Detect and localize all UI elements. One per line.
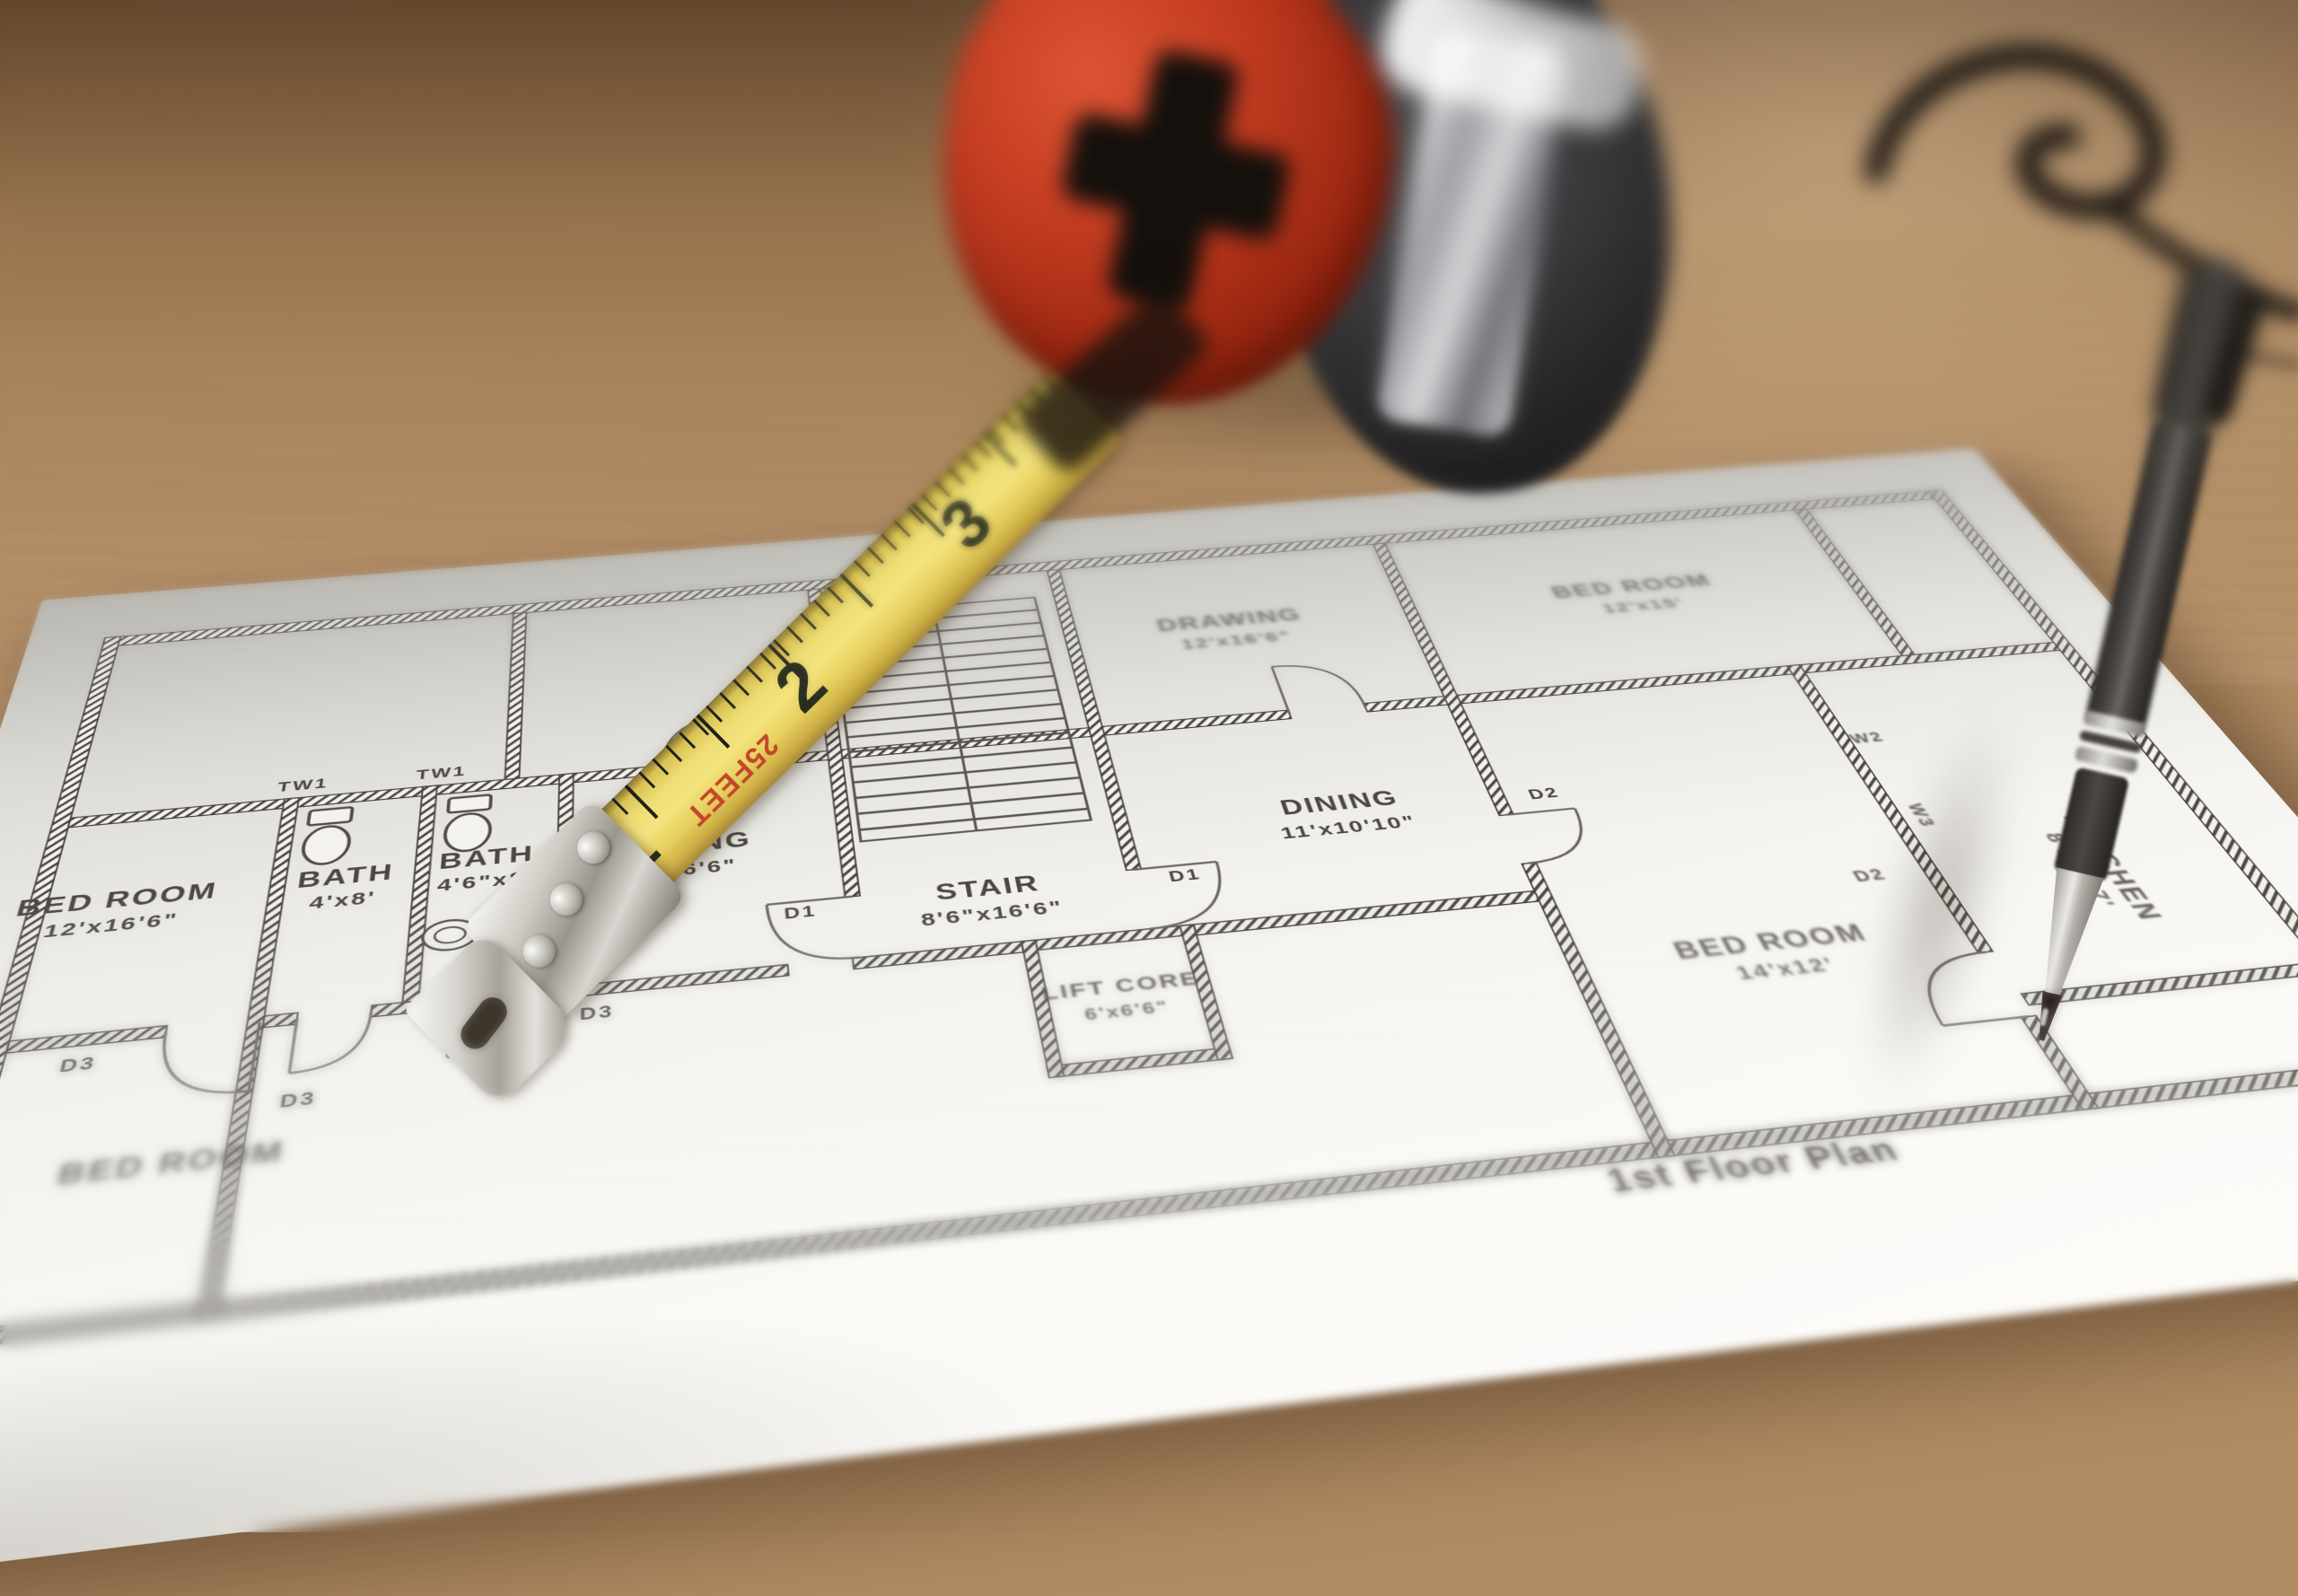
vignette-overlay	[0, 0, 2298, 1532]
